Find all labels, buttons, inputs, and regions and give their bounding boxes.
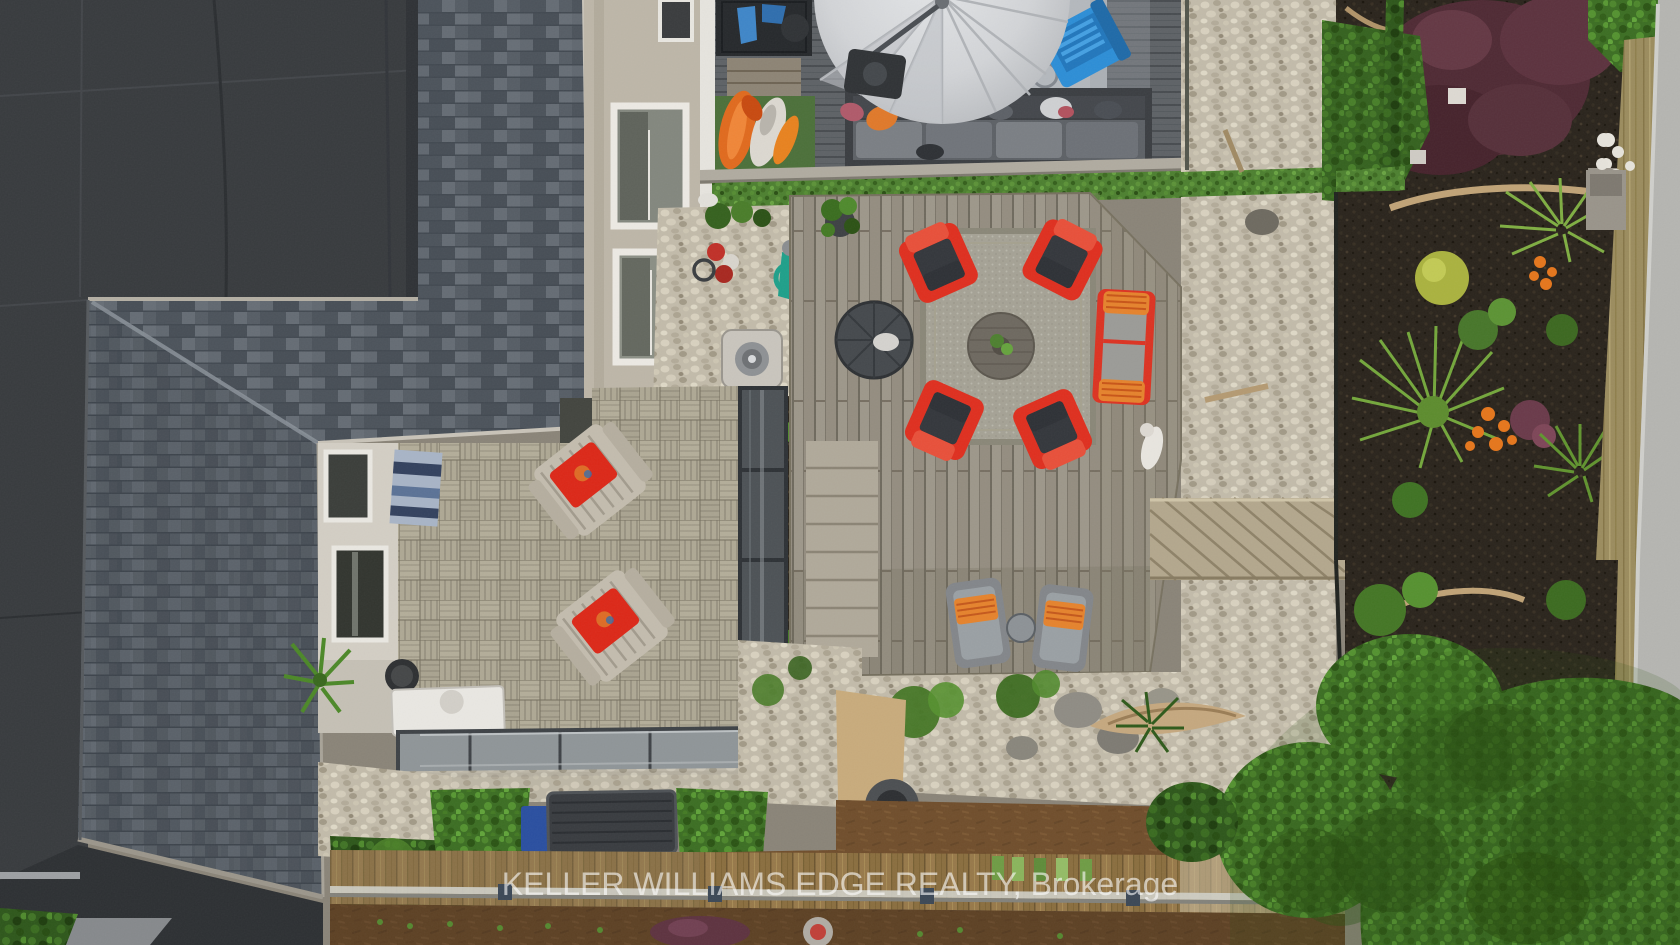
svg-text:KELLER WILLIAMS EDGE REALTY, B: KELLER WILLIAMS EDGE REALTY, Brokerage [502,866,1178,902]
